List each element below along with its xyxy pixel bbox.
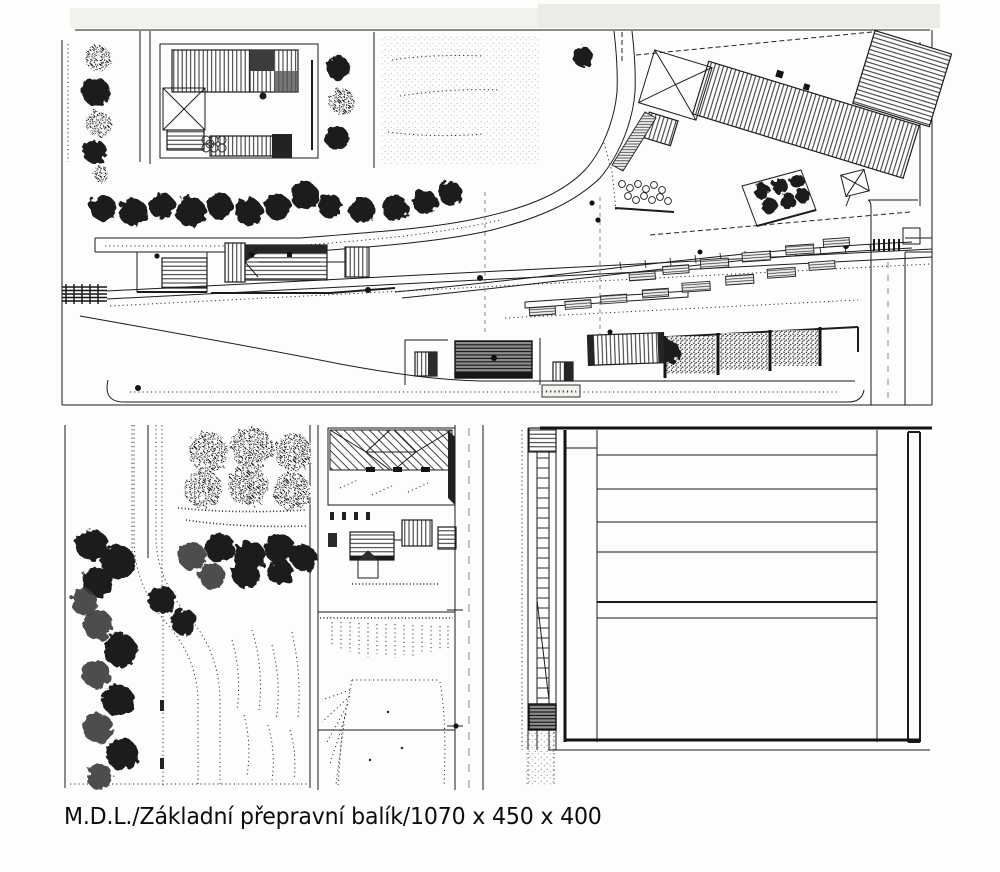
dock-strip [597, 602, 877, 618]
loading-ramp [612, 112, 656, 171]
orchard-grove [178, 427, 312, 526]
bottom-right-module [522, 428, 932, 786]
barrel-pile [619, 181, 672, 205]
roadside-tree-row [90, 181, 462, 227]
caption: M.D.L./Základní přepravní balík/1070 x 4… [64, 804, 736, 830]
transformer-station [841, 169, 870, 249]
bottom-middle-module [318, 425, 483, 790]
courtyard-posts [330, 512, 370, 520]
embankment [318, 612, 455, 786]
meadow-texture [160, 612, 299, 786]
factory-complex [589, 0, 951, 223]
outbuildings [328, 520, 456, 584]
villa-building [328, 428, 455, 505]
small-hut-east [553, 362, 573, 381]
top-module [62, 0, 952, 405]
orchard-plot [742, 170, 816, 226]
scanned-plan-page: { "caption": { "text": "M.D.L./Základní … [0, 0, 1000, 872]
bottom-left-module [65, 425, 317, 790]
station-building [137, 243, 395, 293]
small-hut-west [415, 352, 437, 376]
scan-artifacts [70, 4, 940, 28]
loading-yard-frame [540, 428, 932, 750]
long-warehouse [587, 333, 664, 366]
roadside-trees-lower [82, 586, 197, 790]
farmstead [160, 32, 374, 168]
field-texture [380, 32, 622, 164]
tree-band [71, 529, 317, 615]
plan-label-box [542, 385, 580, 397]
hip-roof-wing [163, 88, 205, 150]
right-road [868, 200, 932, 405]
field-strips [597, 455, 877, 552]
site-plan-drawing [0, 0, 1000, 872]
loading-track [522, 428, 556, 786]
module-edge-track-exit [62, 284, 107, 304]
tree-avenue [82, 31, 150, 182]
